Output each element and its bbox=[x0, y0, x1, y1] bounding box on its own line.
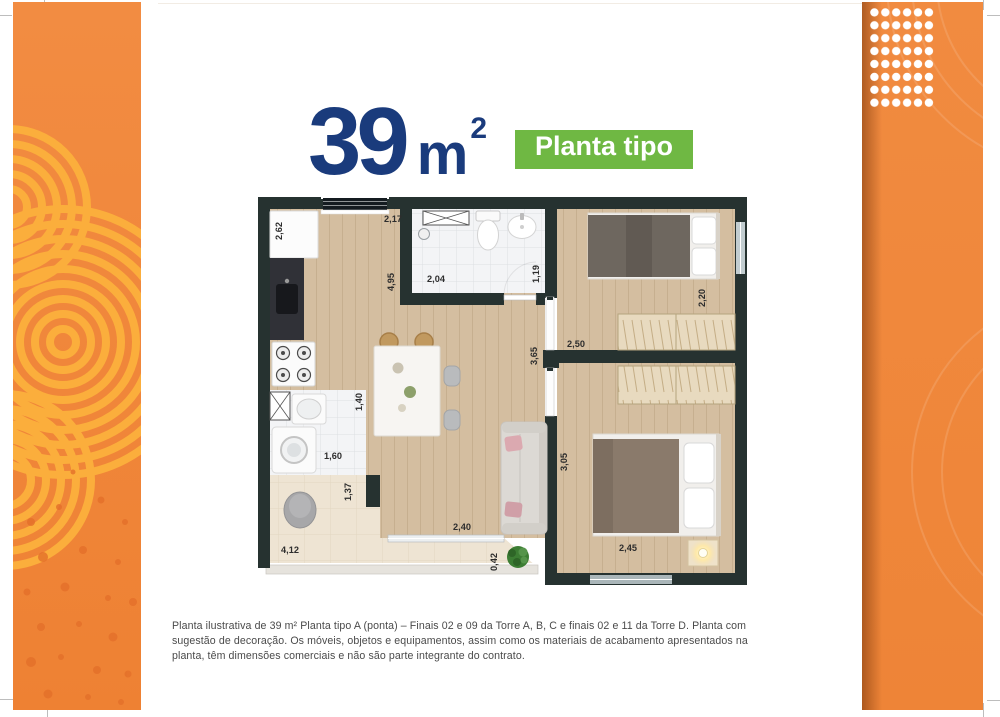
crop-mark bbox=[983, 0, 984, 10]
sofa bbox=[501, 422, 547, 534]
flyer-page: 39 m 2 Planta tipo bbox=[0, 0, 1000, 717]
dim-label: 4,95 bbox=[386, 273, 396, 291]
pillow bbox=[692, 217, 716, 244]
page-title: 39 m 2 bbox=[308, 94, 487, 190]
page-edge-line bbox=[158, 3, 864, 4]
header: 39 m 2 Planta tipo bbox=[252, 94, 749, 190]
area-superscript: 2 bbox=[470, 114, 487, 144]
dim-label: 1,19 bbox=[531, 265, 541, 283]
dim-label: 1,40 bbox=[354, 393, 364, 411]
bedroom2-door bbox=[546, 368, 554, 416]
right-decor-panel bbox=[862, 2, 983, 710]
disclaimer-text: Planta ilustrativa de 39 m² Planta tipo … bbox=[172, 619, 778, 663]
dim-label: 2,45 bbox=[619, 543, 637, 553]
lamp bbox=[699, 549, 708, 558]
dim-label: 0,42 bbox=[489, 553, 499, 571]
dim-label: 1,37 bbox=[343, 483, 353, 501]
dim-label: 2,40 bbox=[453, 522, 471, 532]
pillow bbox=[684, 488, 714, 528]
dim-label: 2,62 bbox=[274, 222, 284, 240]
crop-mark bbox=[987, 700, 1000, 701]
dim-label: 3,05 bbox=[559, 453, 569, 471]
area-unit: m bbox=[417, 126, 469, 184]
bedroom1-door bbox=[546, 297, 554, 350]
pillow bbox=[504, 435, 523, 452]
bathroom-door bbox=[504, 295, 536, 300]
dots-pattern bbox=[862, 2, 983, 710]
pillow bbox=[684, 443, 714, 483]
circles-pattern bbox=[13, 2, 141, 710]
dim-label: 2,20 bbox=[697, 289, 707, 307]
plant bbox=[507, 546, 529, 568]
floor-plan: 2,62 2,17 2,04 1,19 4,95 2,20 2,50 3,65 … bbox=[252, 196, 749, 590]
dim-label: 2,17 bbox=[384, 214, 402, 224]
dim-label: 3,65 bbox=[529, 347, 539, 365]
dining-chair bbox=[444, 366, 460, 386]
crop-mark bbox=[987, 15, 1000, 16]
dim-label: 4,12 bbox=[281, 545, 299, 555]
plan-type-badge: Planta tipo bbox=[515, 130, 693, 169]
left-decor-panel bbox=[13, 2, 141, 710]
dim-label: 2,50 bbox=[567, 339, 585, 349]
crop-mark bbox=[0, 15, 12, 16]
crop-mark bbox=[0, 699, 13, 700]
area-value: 39 bbox=[308, 94, 405, 190]
kitchen-sink bbox=[276, 284, 298, 314]
pillow bbox=[504, 501, 522, 518]
dining-chair bbox=[444, 410, 460, 430]
dim-label: 2,04 bbox=[427, 274, 446, 284]
pillow bbox=[692, 248, 716, 275]
shower-head bbox=[419, 229, 430, 240]
crop-mark bbox=[983, 703, 984, 717]
dim-label: 1,60 bbox=[324, 451, 342, 461]
